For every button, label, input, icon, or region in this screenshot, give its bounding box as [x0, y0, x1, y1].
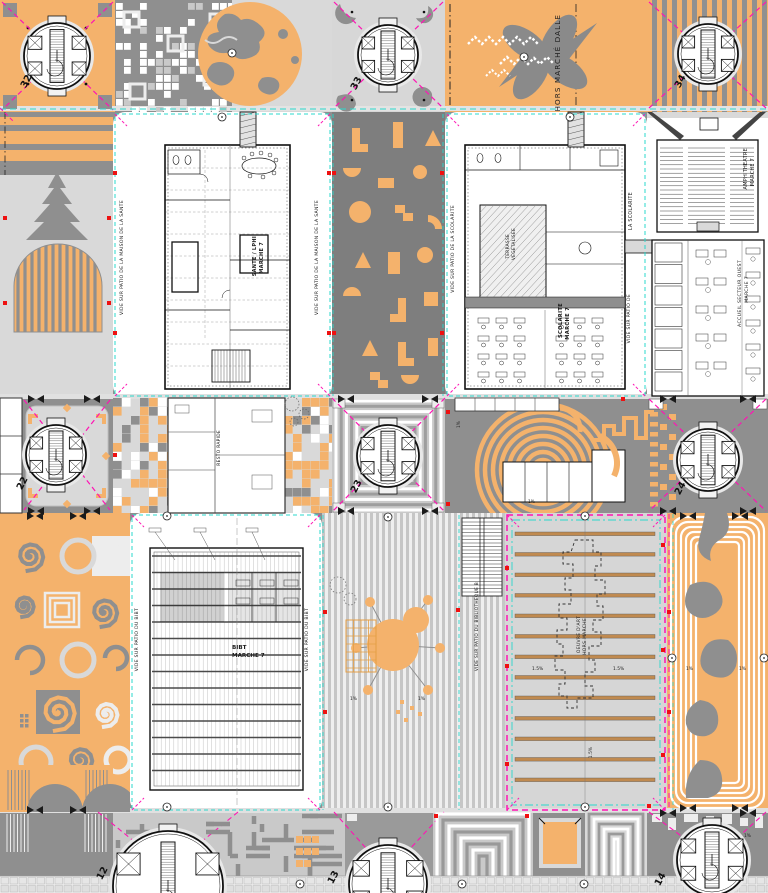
label-vide-patio-scolarite: VIDE SUR PATIO DE LA SCOLARITE — [451, 205, 456, 293]
slope-label: 1.5% — [613, 667, 624, 672]
plan-linework — [0, 0, 768, 893]
label-scolarite-marche: MARCHE 7 — [565, 307, 571, 340]
slope-label: 1% — [350, 697, 357, 702]
label-accueil-marche: MARCHE 7 — [745, 276, 750, 303]
slope-label: 1% — [686, 667, 693, 672]
label-vide-patio-sante-right: VIDE SUR PATIO DE LA MAISON DE LA SANTE — [315, 200, 320, 315]
label-oeuvre-2: HORS MARCHE — [583, 618, 588, 655]
slope-label: 1% — [528, 500, 535, 505]
slope-label: 1% — [457, 421, 462, 428]
label-amphitheatre: AMPHITHEATRE — [743, 148, 749, 189]
abstract-flower-motif — [497, 9, 597, 106]
label-oeuvre-1: OEUVRE D'ART — [577, 616, 582, 653]
label-la-scolarite: LA SCOLARITE — [629, 192, 634, 230]
label-amphitheatre-marche: MARCHE 7 — [750, 158, 756, 186]
label-accueil: ACCUEIL SECTEUR OUEST — [738, 260, 743, 327]
label-vide-patio-de: VIDE SUR PATIO DE — [627, 294, 632, 343]
label-terrasse-2: VEGETALISEE — [512, 228, 517, 260]
label-resto-rapide: RESTO RAPIDE — [217, 430, 222, 466]
stair-tower-12 — [109, 824, 227, 893]
label-bibt-building: BIBT — [232, 645, 246, 651]
label-bibt-marche: MARCHE 7 — [232, 653, 265, 659]
architectural-site-plan: HORS MARCHÉ DALLE VIDE SUR PATIO DE LA M… — [0, 0, 768, 893]
label-sante-building: SANTE / LPHI — [252, 236, 258, 276]
label-vide-patio-bibt-right: VIDE SUR PATIO DU BIBT — [305, 608, 310, 671]
slope-label: 1% — [739, 667, 746, 672]
stair-tower-14 — [673, 818, 751, 893]
slope-label: 1% — [744, 834, 751, 839]
label-terrasse-1: TERRASSE — [506, 234, 511, 259]
slope-label: 1% — [418, 697, 425, 702]
label-vide-patio-bibliotheque: VIDE SUR PATIO DU BIBLIOTHEQUE B — [475, 582, 480, 671]
label-hors-marche-dalle: HORS MARCHÉ DALLE — [553, 14, 562, 111]
label-vide-patio-sante-left: VIDE SUR PATIO DE LA MAISON DE LA SANTE — [120, 200, 125, 315]
slope-label: 1.5% — [532, 667, 543, 672]
stair-tower-13 — [345, 838, 431, 893]
slope-label: 1.5% — [589, 747, 594, 758]
label-scolarite-building: SCOLARITE — [558, 303, 564, 338]
label-vide-patio-bibt-left: VIDE SUR PATIO DU BIBT — [135, 608, 140, 671]
label-sante-marche: MARCHE 7 — [259, 242, 265, 274]
